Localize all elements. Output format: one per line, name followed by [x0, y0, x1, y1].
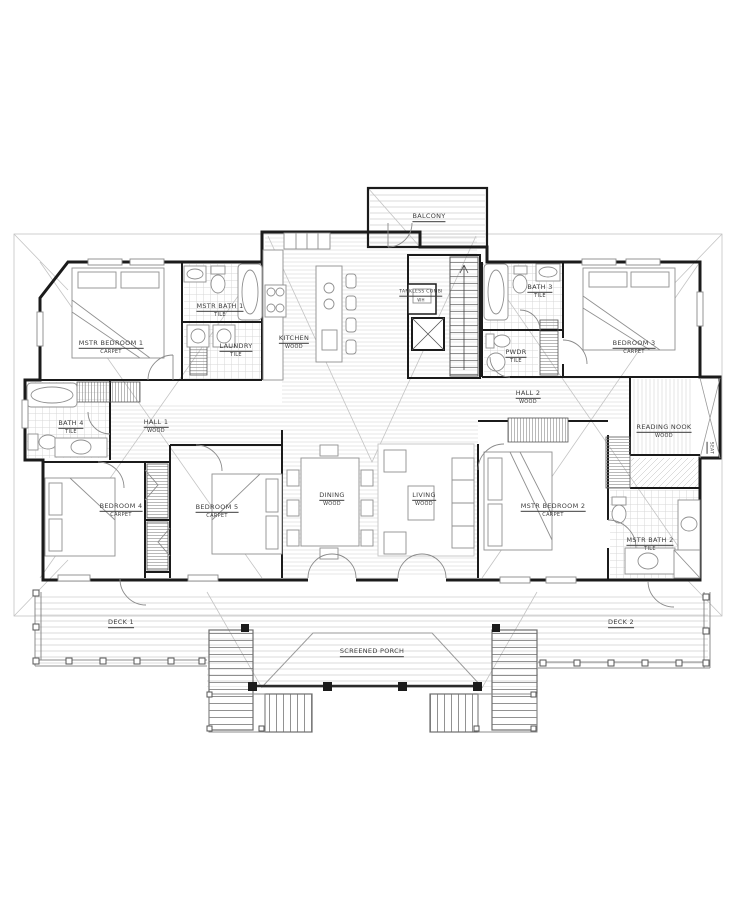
floor-plan-drawing — [0, 0, 736, 920]
floor-plan-page: BALCONYMSTR BEDROOM 1CARPETMSTR BATH 1TI… — [0, 0, 736, 920]
